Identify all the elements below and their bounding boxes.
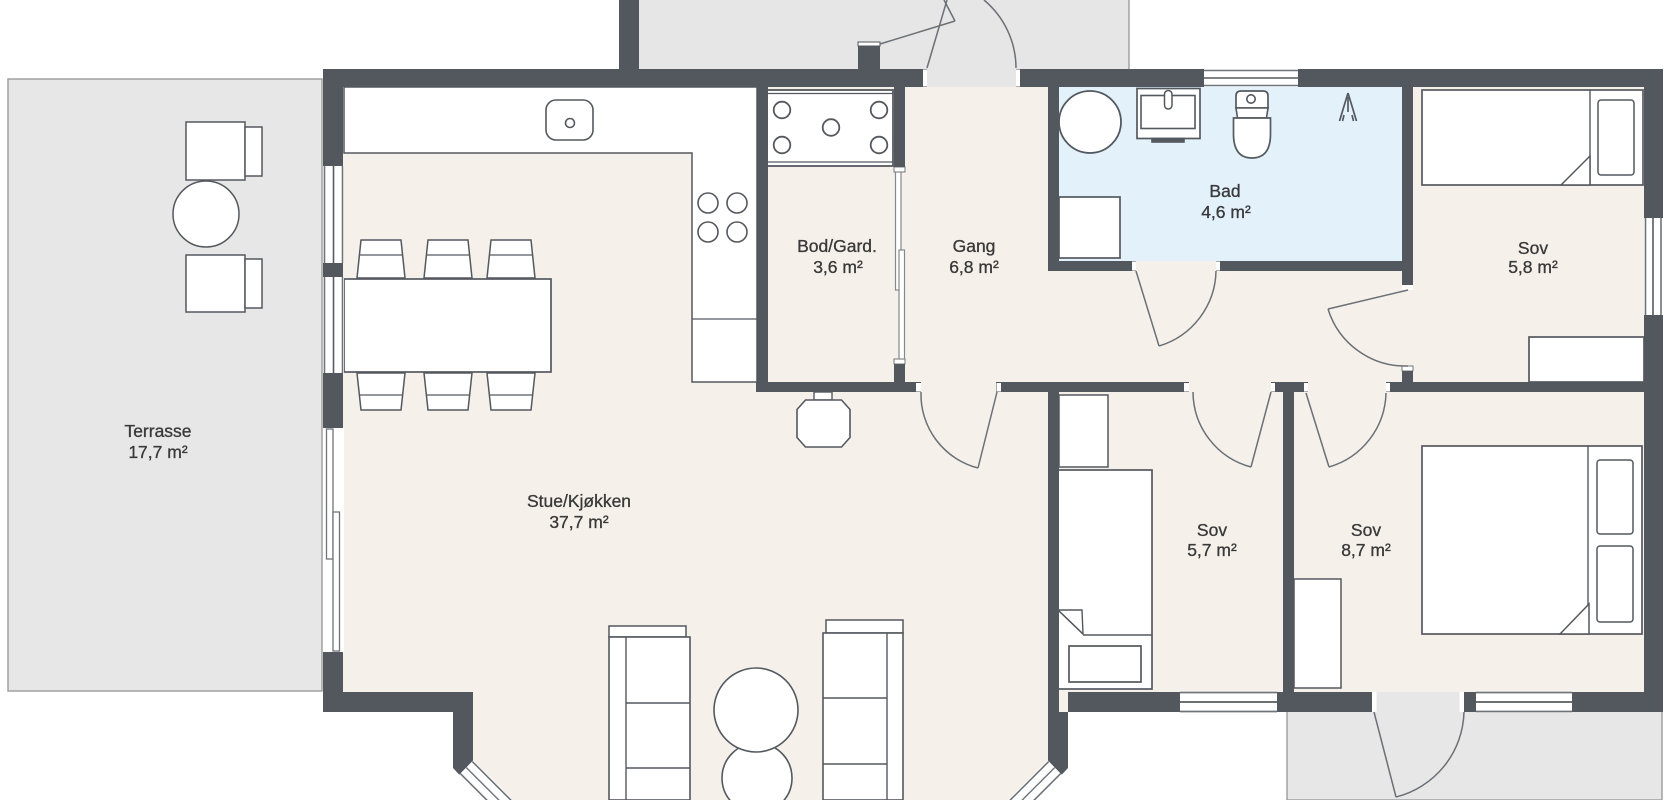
svg-text:Stue/Kjøkken: Stue/Kjøkken bbox=[527, 491, 631, 511]
svg-text:4,6 m²: 4,6 m² bbox=[1201, 202, 1251, 222]
svg-text:Sov: Sov bbox=[1518, 238, 1548, 258]
svg-text:3,6 m²: 3,6 m² bbox=[813, 257, 863, 277]
svg-text:6,8 m²: 6,8 m² bbox=[949, 257, 999, 277]
svg-text:5,7 m²: 5,7 m² bbox=[1187, 540, 1237, 560]
svg-text:Terrasse: Terrasse bbox=[124, 421, 191, 441]
svg-text:37,7 m²: 37,7 m² bbox=[549, 512, 608, 532]
svg-text:5,8 m²: 5,8 m² bbox=[1508, 257, 1558, 277]
svg-text:8,7 m²: 8,7 m² bbox=[1341, 540, 1391, 560]
svg-text:Gang: Gang bbox=[953, 236, 996, 256]
svg-text:17,7 m²: 17,7 m² bbox=[128, 442, 187, 462]
svg-text:Sov: Sov bbox=[1351, 520, 1381, 540]
svg-text:Sov: Sov bbox=[1197, 520, 1227, 540]
svg-text:Bad: Bad bbox=[1209, 181, 1240, 201]
svg-text:Bod/Gard.: Bod/Gard. bbox=[797, 236, 877, 256]
